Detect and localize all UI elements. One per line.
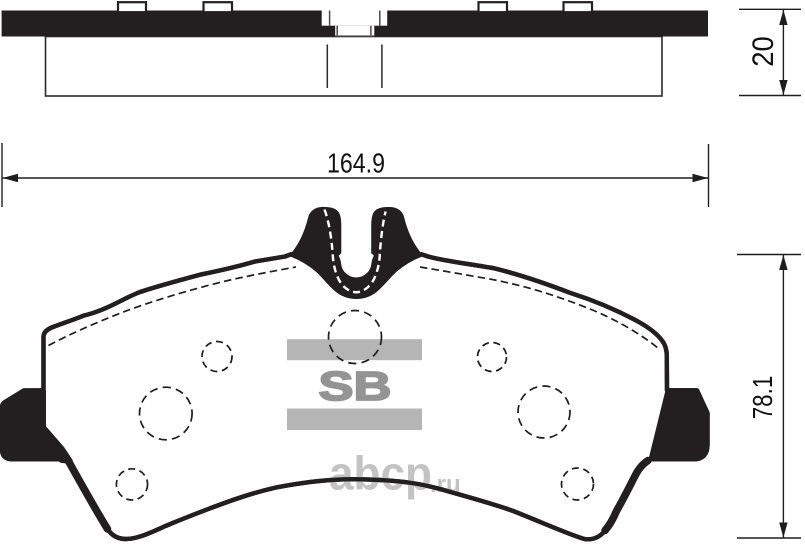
svg-text:abcp: abcp	[329, 447, 432, 500]
svg-text:20: 20	[747, 36, 780, 67]
svg-text:SB: SB	[319, 363, 392, 409]
svg-text:78.1: 78.1	[747, 376, 778, 420]
svg-text:164.9: 164.9	[327, 148, 385, 179]
